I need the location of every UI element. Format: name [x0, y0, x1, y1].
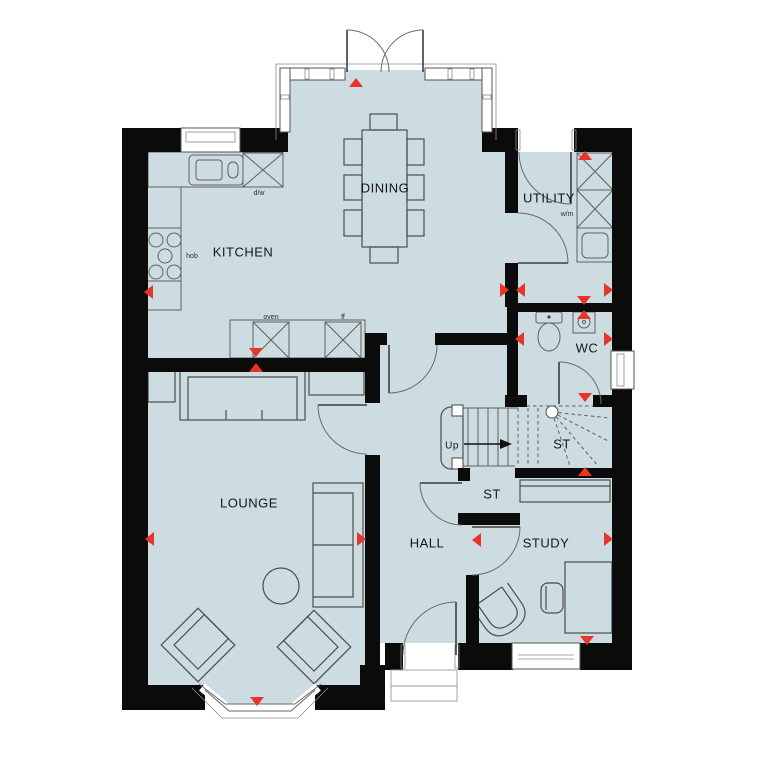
room-label-wc: WC: [576, 340, 599, 355]
room-label-kitchen: KITCHEN: [213, 244, 274, 259]
wc-window: [611, 351, 634, 389]
room-label-dining: DINING: [361, 180, 410, 195]
front-door-opening: [401, 643, 459, 670]
porch-step: [391, 670, 457, 701]
kitchen-window: [181, 128, 240, 152]
study-window: [512, 643, 580, 669]
fixture-label-dw: d/w: [254, 190, 266, 197]
fixture-label-oven: oven: [263, 314, 278, 321]
room-label-study: STUDY: [523, 535, 570, 550]
utility-door-opening: [516, 128, 576, 152]
room-label-utility: UTILITY: [523, 190, 575, 205]
stair-newel: [546, 406, 558, 418]
room-label-st-stairs: ST: [553, 436, 571, 451]
stairs-label-up: Up: [445, 441, 459, 452]
floor-plan: DININGKITCHENUTILITYWCSTSTLOUNGEHALLSTUD…: [0, 0, 760, 760]
floor-plan-drawing: DININGKITCHENUTILITYWCSTSTLOUNGEHALLSTUD…: [0, 0, 760, 760]
room-label-st-store: ST: [483, 486, 501, 501]
room-label-lounge: LOUNGE: [220, 495, 278, 510]
fixture-label-ff: ff: [341, 314, 345, 321]
french-doors: [347, 30, 423, 72]
room-label-hall: HALL: [410, 535, 445, 550]
fixture-label-wm: w/m: [560, 211, 574, 218]
fixture-label-hob: hob: [186, 253, 198, 260]
